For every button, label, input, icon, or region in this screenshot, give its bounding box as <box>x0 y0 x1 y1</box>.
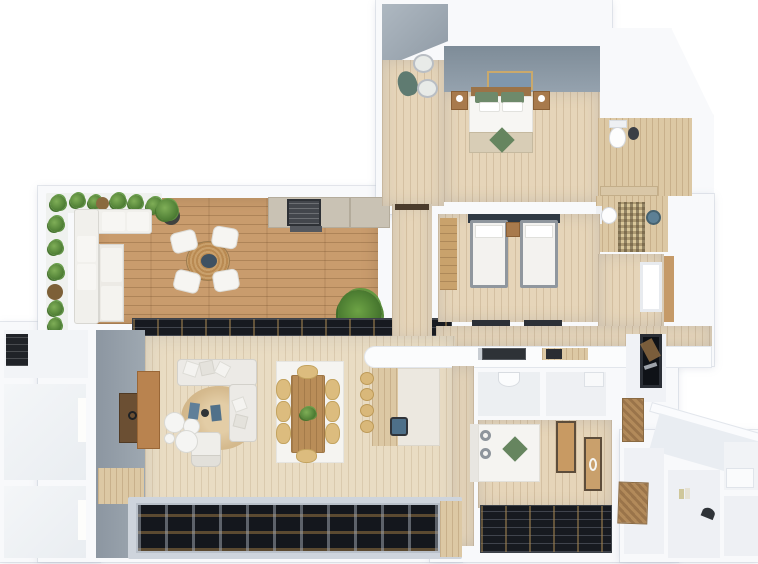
nook-side-table-1 <box>413 54 434 73</box>
entry-hall-floor <box>392 204 432 340</box>
outdoor-sofa-cushion-3 <box>77 236 96 262</box>
coffee-table-3 <box>175 430 198 453</box>
dining-chair-left-3 <box>276 423 291 444</box>
bedroom3-door-panel-1 <box>556 421 576 473</box>
master-pillow-white-1 <box>479 102 500 112</box>
planter-plant-4 <box>110 193 126 209</box>
outdoor-sofa-cushion-4 <box>77 264 96 290</box>
storage-doorway-light-2 <box>78 500 86 540</box>
kitchen-hob <box>482 348 526 360</box>
dining-chair-right-1 <box>325 379 340 400</box>
utility-cabinet <box>584 372 604 387</box>
terrace-plant-bush <box>156 199 178 221</box>
living-sofa-right <box>229 384 257 442</box>
bbq-counter-seam <box>349 198 351 227</box>
bar-stool-3 <box>360 404 374 417</box>
tv-sideboard <box>137 371 160 449</box>
outdoor-sofa-cushion-2 <box>127 212 149 231</box>
sofa-pillow-2 <box>199 360 216 377</box>
nook-side-table-2 <box>417 79 438 98</box>
twin-wardrobe <box>440 218 457 290</box>
coffee-table-4 <box>164 433 175 444</box>
corridor-east-floor <box>436 326 712 346</box>
floor-plan <box>0 0 758 564</box>
bedroom3-window <box>480 505 612 553</box>
outdoor-chair-2 <box>210 225 239 250</box>
hall-window-opening <box>640 262 662 312</box>
dining-chair-right-3 <box>325 423 340 444</box>
dining-centerpiece <box>300 407 316 420</box>
kitchen-island-sink <box>390 417 408 436</box>
back-room-3-niche <box>726 468 754 488</box>
bedroom3-round-pillow-2 <box>480 448 491 459</box>
bedroom3-door-handle <box>589 458 597 471</box>
master-lamp-left <box>456 95 463 102</box>
storage-dark-shelf <box>6 334 28 366</box>
bar-stool-1 <box>360 372 374 385</box>
bathroom1-vanity <box>600 186 658 196</box>
storage-room-2-floor <box>4 384 86 480</box>
wood-panel-art-2 <box>617 481 648 524</box>
tv-panel-ring <box>128 411 137 420</box>
bathroom2-toilet <box>601 207 617 224</box>
planter-plant-9 <box>48 264 64 280</box>
bar-stool-2 <box>360 388 374 401</box>
kitchen-counter-sink <box>546 349 562 359</box>
dining-chair-left-1 <box>276 379 291 400</box>
rug-decor-dark <box>201 409 209 417</box>
planter-plant-7 <box>48 216 64 232</box>
outdoor-sofa-cushion-5 <box>101 248 122 282</box>
planter-plant-2 <box>70 193 85 208</box>
bbq-grill <box>287 199 321 226</box>
hall-wood-panel <box>664 256 674 322</box>
rug-decor-blue-2 <box>210 405 222 422</box>
planter-plant-10 <box>48 301 63 316</box>
twin-bed-1-pillow <box>475 225 503 238</box>
bar-stool-4 <box>360 420 374 433</box>
living-window-wood-end <box>440 501 462 557</box>
planter-pot-left <box>47 284 63 300</box>
master-pillow-white-2 <box>502 102 523 112</box>
bathroom2-mosaic-wall <box>618 202 645 252</box>
wc-toilet <box>498 372 520 387</box>
bathroom1-toilet <box>609 127 626 148</box>
planter-plant-5 <box>128 195 143 210</box>
wood-panel-art-1 <box>622 398 644 442</box>
bathroom2-basin <box>646 210 661 225</box>
planter-plant-1 <box>50 195 66 211</box>
twin-bed-2-pillow <box>525 225 553 238</box>
twin-nightstand <box>506 222 520 237</box>
living-window-glass <box>136 503 440 553</box>
dining-chair-top <box>297 365 318 379</box>
bathroom1-accessory <box>628 127 639 140</box>
dining-chair-left-2 <box>276 401 291 422</box>
back-room-4-floor <box>724 496 758 556</box>
vanity-bottle-2 <box>685 488 690 499</box>
vanity-bottle-1 <box>679 489 684 499</box>
bbq-vent <box>290 226 322 232</box>
dining-chair-bottom <box>296 449 317 463</box>
bedroom3-round-pillow-1 <box>480 430 491 441</box>
planter-plant-8 <box>48 240 63 255</box>
outdoor-table-center <box>201 254 217 268</box>
living-armchair-back <box>191 455 221 467</box>
dining-chair-right-2 <box>325 401 340 422</box>
storage-doorway-light-1 <box>78 398 86 442</box>
outdoor-sofa-cushion-6 <box>101 286 122 320</box>
storage-room-3-floor <box>4 486 86 558</box>
entry-open-door <box>395 204 429 210</box>
outdoor-sofa-cushion-1 <box>102 212 125 231</box>
master-lamp-right <box>538 95 545 102</box>
